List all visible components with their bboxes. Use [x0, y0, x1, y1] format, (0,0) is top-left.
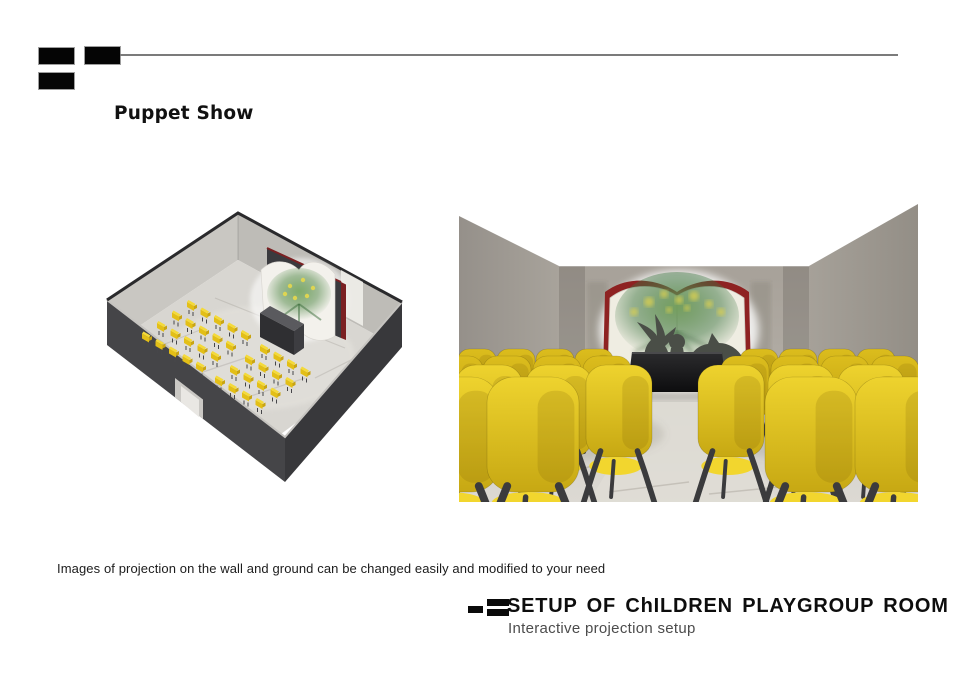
persp-room [459, 202, 918, 502]
slide-title: Puppet Show [114, 103, 254, 124]
brand-rect-icon [38, 47, 75, 65]
caption: Images of projection on the wall and gro… [57, 561, 605, 576]
perspective-room-svg [459, 202, 918, 502]
isometric-room-render [95, 208, 410, 483]
brand-rect-icon [38, 72, 75, 90]
isometric-room-svg [95, 208, 410, 483]
brand-rect-icon [84, 46, 121, 65]
header-rule [120, 54, 898, 56]
iso-room [107, 213, 402, 482]
footer-subtitle: Interactive projection setup [508, 620, 696, 637]
chair [759, 377, 862, 502]
footer-title: SETUP OF ChILDREN PLAYGROUP ROOM [507, 595, 949, 618]
footer-bar-icon [487, 609, 509, 616]
chair [481, 377, 584, 502]
perspective-room-render [459, 202, 918, 502]
footer-bar-icon [487, 599, 509, 606]
slide: Puppet Show Images of projection on the … [0, 0, 960, 679]
footer-bar-icon [468, 606, 483, 613]
